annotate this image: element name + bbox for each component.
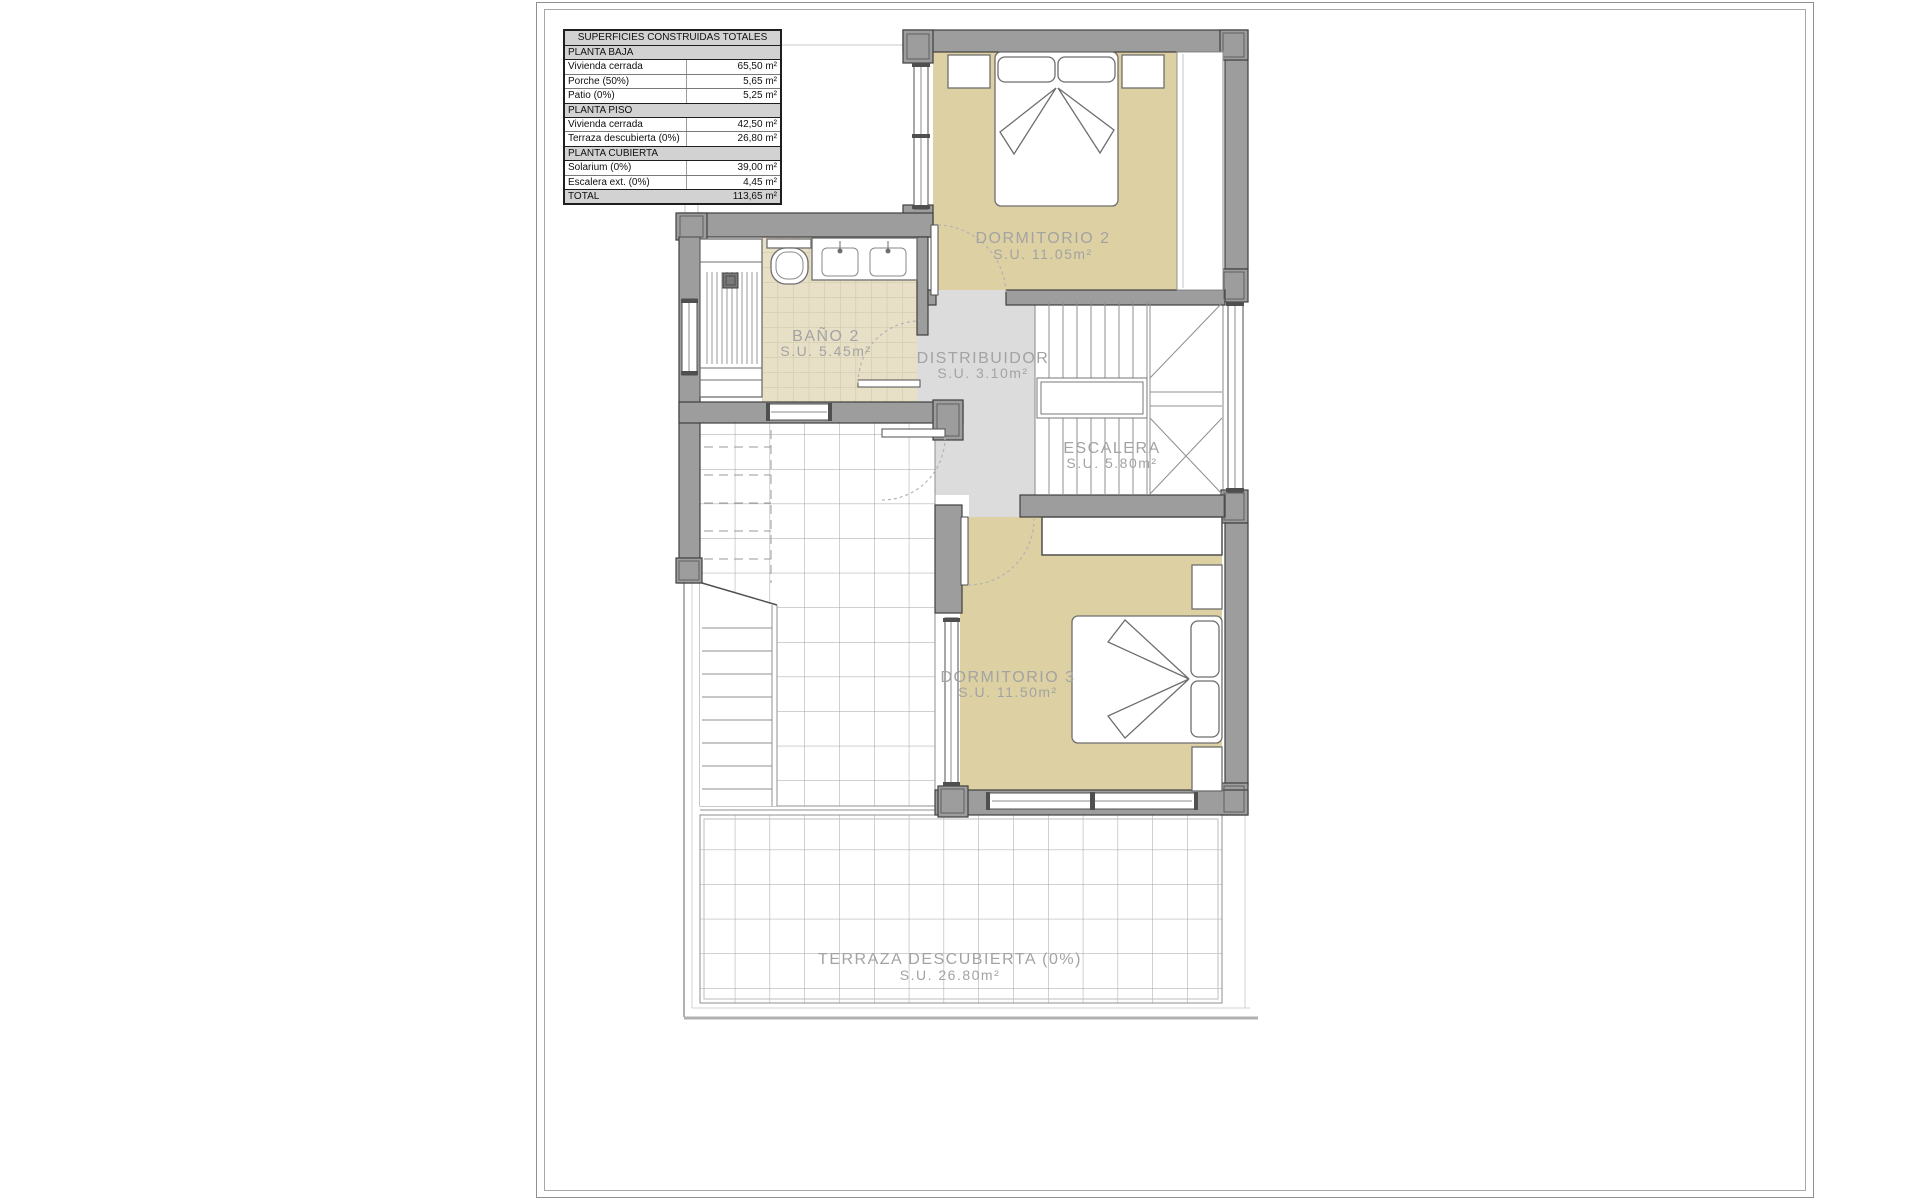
pillow [1191, 621, 1219, 677]
pillow [1058, 57, 1115, 82]
wardrobe-dorm2 [1177, 52, 1223, 290]
floor-plan-drawing: DORMITORIO 2 S.U. 11.05m² BAÑO 2 S.U. 5.… [0, 0, 1920, 1200]
svg-text:S.U. 5.45m²: S.U. 5.45m² [780, 343, 871, 359]
window-bath-bottom [766, 403, 832, 421]
shower [700, 239, 762, 397]
exterior-stair [700, 583, 777, 806]
wall-bath-top [679, 213, 933, 237]
wall-right-lower [1225, 523, 1248, 785]
window-dorm3-left [943, 618, 960, 786]
nightstand [1122, 55, 1164, 88]
svg-text:S.U. 3.10m²: S.U. 3.10m² [937, 365, 1028, 381]
label-terraza: TERRAZA DESCUBIERTA (0%) [818, 951, 1082, 968]
label-bano-2: BAÑO 2 [792, 325, 860, 345]
shower-drain [723, 273, 738, 288]
wall-dorm3-top [1020, 495, 1225, 517]
table-row: Patio (0%) 5,25 m² [565, 89, 780, 103]
table-row-section: PLANTA BAJA [565, 45, 780, 60]
table-row-total: TOTAL 113,65 m² [565, 189, 780, 203]
nightstand [948, 55, 990, 88]
surface-areas-table: SUPERFICIES CONSTRUIDAS TOTALES PLANTA B… [563, 29, 782, 205]
pillow [998, 57, 1055, 82]
pillow [1191, 681, 1219, 737]
table-row-section: PLANTA PISO [565, 103, 780, 118]
wall-dorm2-bottom [1006, 290, 1225, 305]
window-dorm2-left [912, 63, 930, 209]
table-row: Vivienda cerrada 42,50 m² [565, 118, 780, 132]
svg-text:S.U. 11.05m²: S.U. 11.05m² [993, 246, 1092, 262]
wall-right-upper [1225, 52, 1248, 269]
table-row: Escalera ext. (0%) 4,45 m² [565, 176, 780, 190]
table-row: Solarium (0%) 39,00 m² [565, 161, 780, 175]
window-dorm3-bottom [986, 792, 1198, 810]
surface-table-title: SUPERFICIES CONSTRUIDAS TOTALES [565, 31, 780, 46]
nightstand [1192, 565, 1222, 609]
floorplan-page: DORMITORIO 2 S.U. 11.05m² BAÑO 2 S.U. 5.… [0, 0, 1920, 1200]
nightstand [1192, 747, 1222, 791]
window-stair-right [1226, 302, 1244, 492]
table-row: Vivienda cerrada 65,50 m² [565, 60, 780, 74]
table-row-section: PLANTA CUBIERTA [565, 146, 780, 161]
table-row: Terraza descubierta (0%) 26,80 m² [565, 132, 780, 146]
stair-void [1037, 378, 1147, 418]
sink-counter [812, 238, 917, 280]
wardrobe-dorm3 [1042, 517, 1222, 555]
toilet [767, 239, 811, 284]
label-dormitorio-2: DORMITORIO 2 [975, 230, 1110, 247]
window-bath-left [681, 299, 698, 375]
wall-dorm3-left [935, 505, 962, 613]
svg-text:S.U. 26.80m²: S.U. 26.80m² [900, 967, 1000, 983]
wall-top [903, 30, 1248, 52]
wall-bath-hall [917, 237, 928, 335]
table-row: Porche (50%) 5,65 m² [565, 75, 780, 89]
pillar [676, 213, 707, 240]
pillar [676, 558, 702, 583]
svg-text:S.U. 5.80m²: S.U. 5.80m² [1066, 455, 1157, 471]
svg-text:S.U. 11.50m²: S.U. 11.50m² [958, 684, 1057, 700]
